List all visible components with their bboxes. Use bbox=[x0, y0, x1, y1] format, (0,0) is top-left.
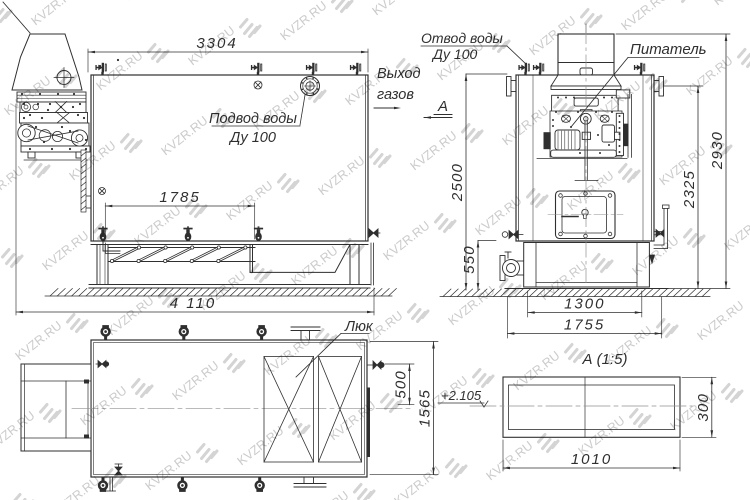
svg-text:1785: 1785 bbox=[159, 189, 200, 206]
svg-text:Питатель: Питатель bbox=[630, 41, 707, 58]
svg-text:А: А bbox=[437, 98, 448, 115]
svg-text:500: 500 bbox=[393, 370, 410, 399]
svg-text:1755: 1755 bbox=[564, 317, 605, 334]
svg-text:Ду 100: Ду 100 bbox=[228, 130, 276, 146]
svg-text:газов: газов bbox=[377, 87, 414, 103]
svg-text:1300: 1300 bbox=[564, 296, 605, 313]
svg-text:2325: 2325 bbox=[681, 170, 698, 209]
svg-text:1010: 1010 bbox=[571, 451, 612, 468]
svg-text:2500: 2500 bbox=[449, 163, 466, 202]
svg-text:550: 550 bbox=[461, 245, 478, 274]
